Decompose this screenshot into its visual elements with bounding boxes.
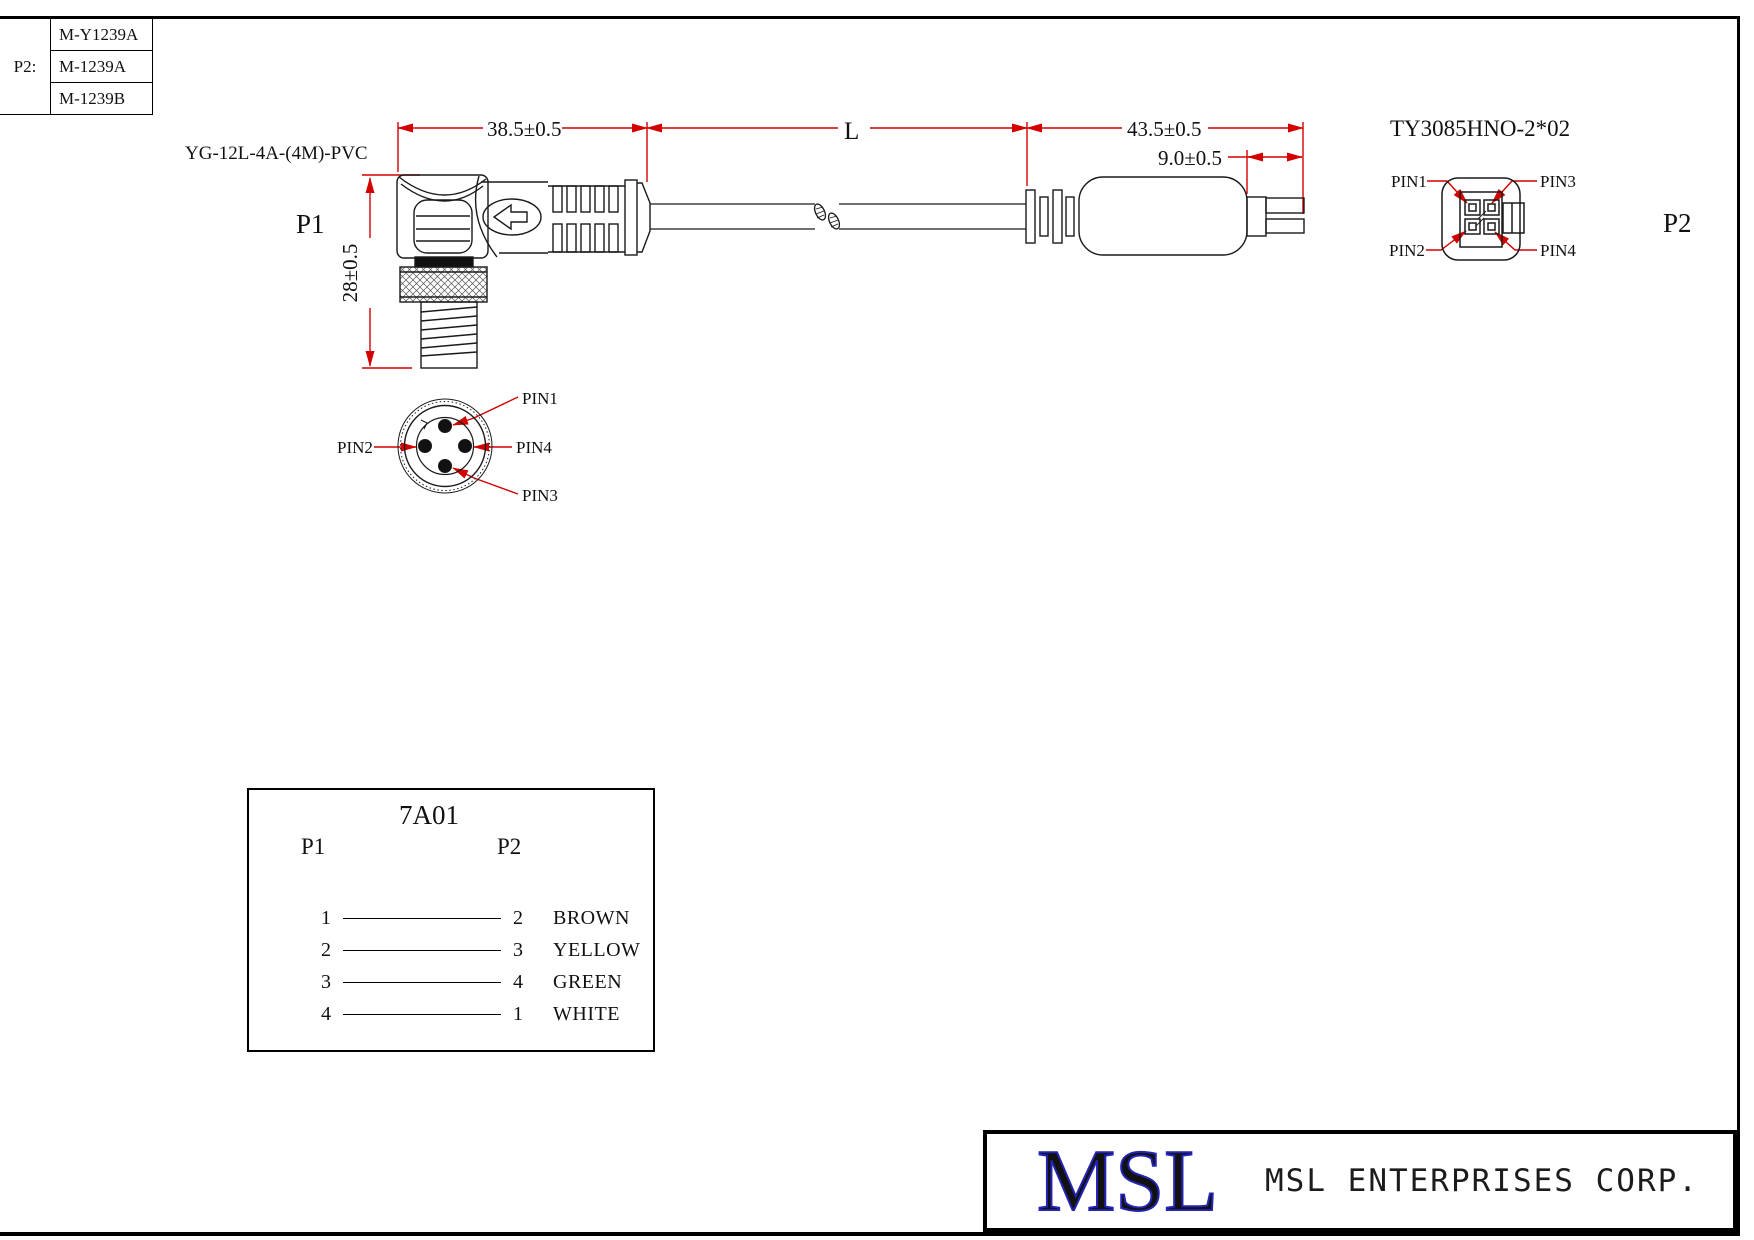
wiring-p2-pin: 2 — [513, 907, 537, 930]
company-name: MSL ENTERPRISES CORP. — [1265, 1163, 1699, 1199]
msl-logo: MSL — [1037, 1136, 1253, 1226]
title-block: MSL MSL ENTERPRISES CORP. — [983, 1130, 1737, 1232]
wire-line — [343, 918, 501, 919]
dim-p1-height: 28±0.5 — [338, 244, 362, 303]
wiring-p1-pin: 1 — [311, 907, 331, 930]
wire-color-label: WHITE — [553, 1003, 620, 1026]
p2-label: P2 — [1663, 208, 1692, 238]
p1-pin4-label: PIN4 — [516, 438, 552, 457]
p2-pin1-label: PIN1 — [1391, 172, 1427, 191]
wiring-p2-pin: 3 — [513, 939, 537, 962]
wiring-row: 2 3 YELLOW — [249, 934, 653, 966]
cable-break-symbol — [812, 202, 841, 230]
p2-connector-title: TY3085HNO-2*02 — [1390, 116, 1570, 141]
p1-connector-drawing — [397, 175, 650, 368]
wire-line — [343, 982, 501, 983]
engineering-drawing-page: { "colors": { "line": "#1a1a1a", "dimens… — [0, 0, 1754, 1240]
dim-p2-tab: 9.0±0.5 — [1158, 146, 1222, 170]
p2-pin3-label: PIN3 — [1540, 172, 1576, 191]
dim-p2-length: 43.5±0.5 — [1127, 117, 1202, 141]
wiring-row: 3 4 GREEN — [249, 966, 653, 998]
wiring-row: 4 1 WHITE — [249, 998, 653, 1030]
wiring-p1-pin: 4 — [311, 1003, 331, 1026]
wire-color-label: GREEN — [553, 971, 622, 994]
wiring-p2-pin: 1 — [513, 1003, 537, 1026]
p1-face-diagram — [398, 399, 492, 493]
wiring-col2-header: P2 — [497, 834, 521, 860]
wiring-rows: 1 2 BROWN 2 3 YELLOW 3 4 GREEN 4 1 WHITE — [249, 902, 653, 1030]
cable-part-label: YG-12L-4A-(4M)-PVC — [185, 143, 368, 164]
wiring-row: 1 2 BROWN — [249, 902, 653, 934]
wiring-p1-pin: 2 — [311, 939, 331, 962]
wiring-diagram-box: 7A01 P1 P2 1 2 BROWN 2 3 YELLOW 3 4 GREE… — [247, 788, 655, 1052]
p2-pin4-label: PIN4 — [1540, 241, 1576, 260]
p1-pin2-label: PIN2 — [337, 438, 373, 457]
wiring-p1-pin: 3 — [311, 971, 331, 994]
wire-color-label: BROWN — [553, 907, 630, 930]
dim-p1-body-length: 38.5±0.5 — [487, 117, 562, 141]
wire-line — [343, 950, 501, 951]
p1-label: P1 — [296, 209, 325, 239]
p1-pin3-label: PIN3 — [522, 486, 558, 505]
wiring-p2-pin: 4 — [513, 971, 537, 994]
msl-logo-text: MSL — [1037, 1136, 1218, 1226]
p2-connector-drawing — [1026, 177, 1304, 255]
dim-cable-length: L — [844, 118, 859, 145]
wiring-title: 7A01 — [249, 800, 609, 831]
p2-pin2-label: PIN2 — [1389, 241, 1425, 260]
wire-line — [343, 1014, 501, 1015]
wiring-col1-header: P1 — [301, 834, 325, 860]
cable-assembly-drawing: YG-12L-4A-(4M)-PVC P1 38.5±0.5 L 43.5±0.… — [0, 0, 1754, 1240]
p1-pin1-label: PIN1 — [522, 389, 558, 408]
cable-drawing — [650, 202, 1026, 230]
wire-color-label: YELLOW — [553, 939, 640, 962]
